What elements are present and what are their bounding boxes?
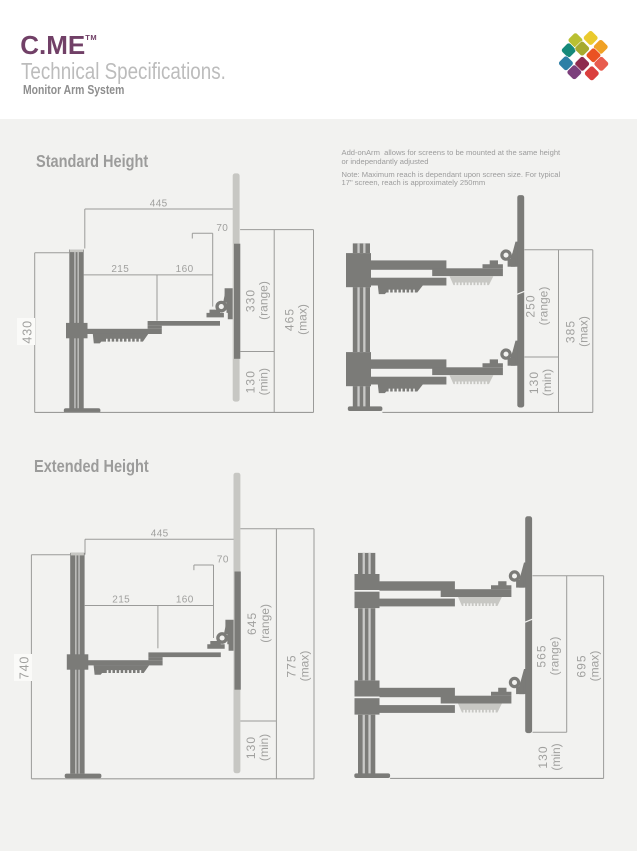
svg-text:215: 215 xyxy=(111,264,129,275)
svg-text:445: 445 xyxy=(151,529,169,540)
svg-text:250(range): 250(range) xyxy=(524,287,551,326)
svg-text:385(max): 385(max) xyxy=(564,316,591,347)
svg-text:70: 70 xyxy=(217,555,229,566)
svg-text:445: 445 xyxy=(150,198,168,209)
svg-text:215: 215 xyxy=(112,594,130,605)
svg-text:160: 160 xyxy=(176,264,194,275)
svg-text:130(min): 130(min) xyxy=(244,734,271,761)
svg-text:740: 740 xyxy=(17,656,31,680)
svg-text:130(min): 130(min) xyxy=(527,369,554,396)
svg-text:70: 70 xyxy=(216,223,228,234)
svg-text:465(max): 465(max) xyxy=(283,304,310,335)
svg-text:565(range): 565(range) xyxy=(535,637,562,676)
svg-text:430: 430 xyxy=(21,320,35,344)
svg-text:330(range): 330(range) xyxy=(244,281,271,320)
svg-text:645(range): 645(range) xyxy=(245,604,272,643)
svg-text:160: 160 xyxy=(176,594,194,605)
svg-text:695(max): 695(max) xyxy=(575,651,602,682)
svg-text:130(min): 130(min) xyxy=(244,368,271,395)
svg-text:130(min): 130(min) xyxy=(536,743,563,770)
svg-text:775(max): 775(max) xyxy=(284,651,311,682)
